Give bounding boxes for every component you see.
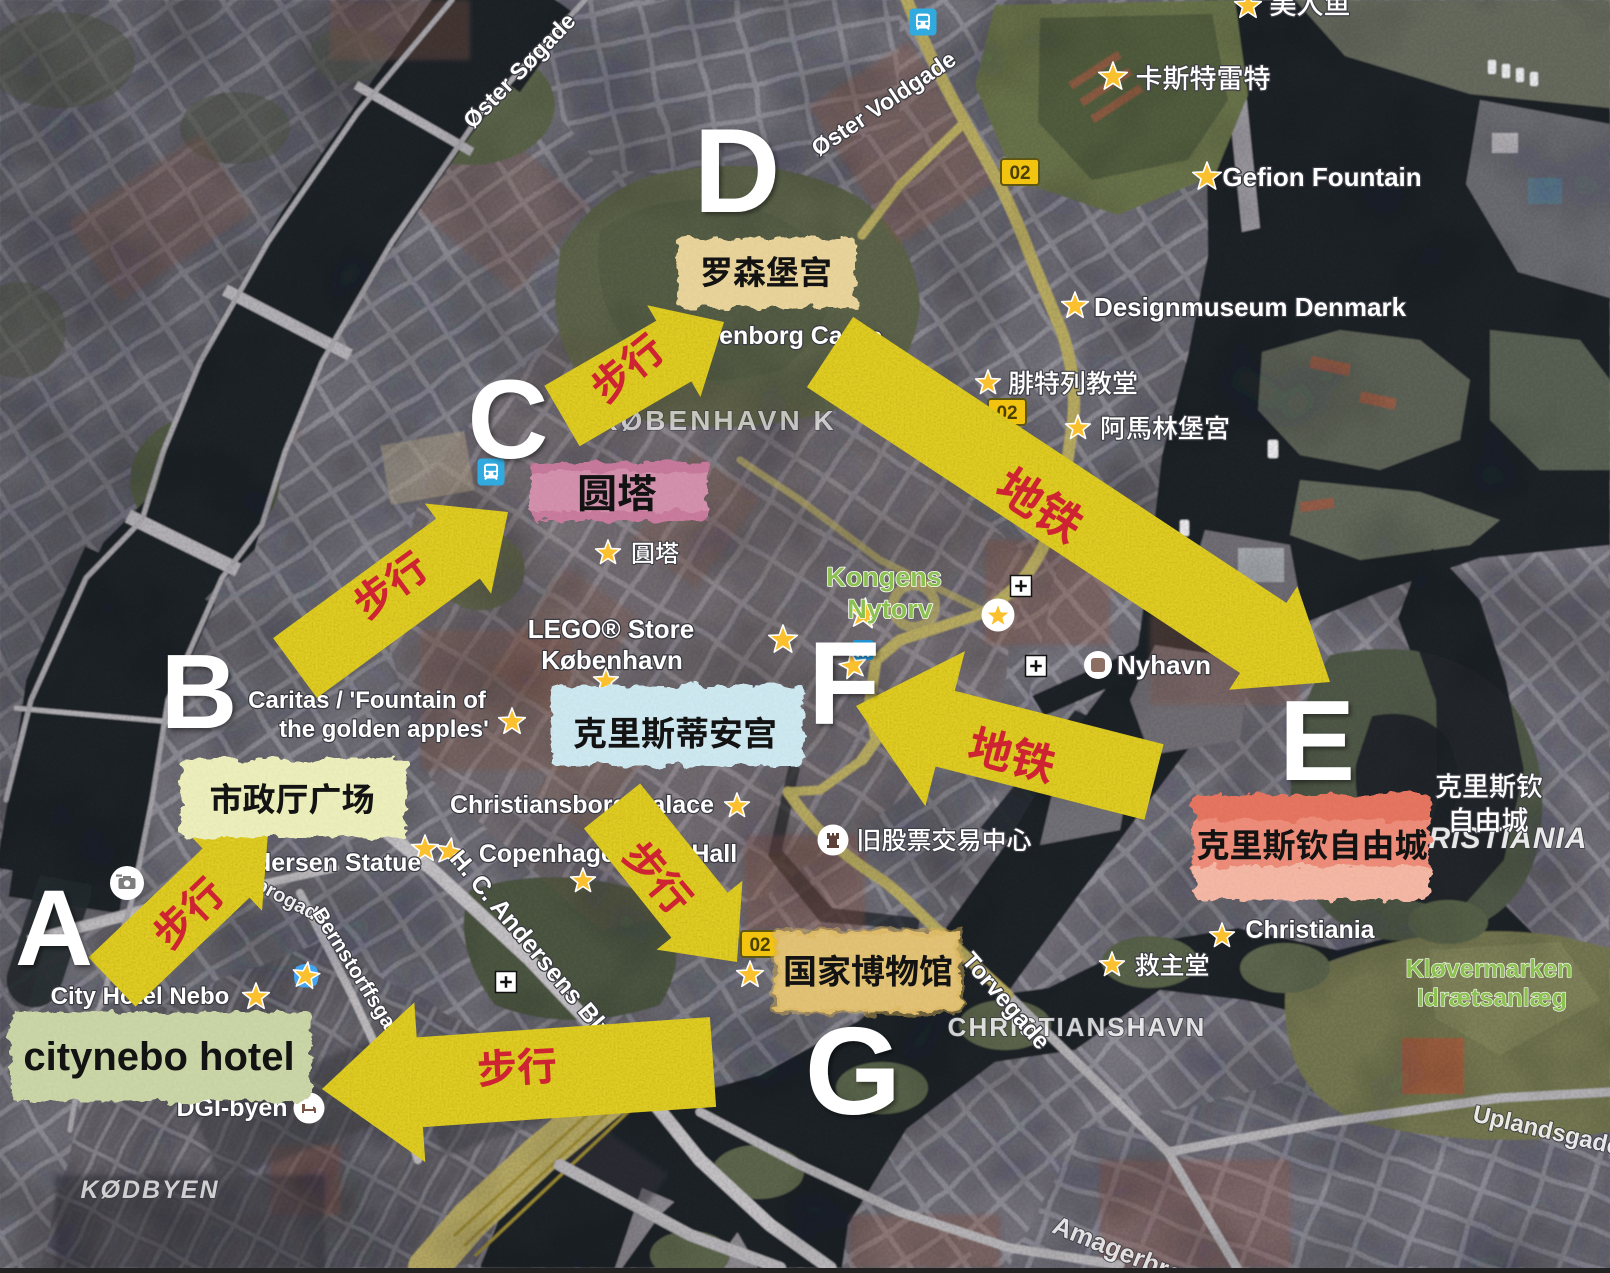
svg-text:B: B <box>161 633 238 751</box>
svg-text:København: København <box>541 645 683 675</box>
svg-text:Gefion Fountain: Gefion Fountain <box>1222 162 1421 192</box>
svg-text:C: C <box>468 357 549 482</box>
svg-text:the golden apples': the golden apples' <box>279 716 489 743</box>
svg-text:CHRISTIANSHAVN: CHRISTIANSHAVN <box>948 1012 1207 1042</box>
svg-text:Christiansborg Palace: Christiansborg Palace <box>450 791 714 819</box>
svg-text:Christiania: Christiania <box>1245 916 1375 944</box>
svg-text:Idrætsanlæg: Idrætsanlæg <box>1417 984 1567 1012</box>
svg-text:Caritas / 'Fountain of: Caritas / 'Fountain of <box>248 687 487 714</box>
svg-text:Kongens: Kongens <box>826 562 942 592</box>
svg-text:F: F <box>808 618 880 750</box>
svg-text:E: E <box>1279 678 1355 805</box>
svg-text:citynebo hotel: citynebo hotel <box>23 1035 294 1079</box>
svg-text:senborg Ca: senborg Ca <box>705 322 844 350</box>
svg-text:02: 02 <box>749 935 770 956</box>
svg-text:Kløvermarken: Kløvermarken <box>1406 955 1573 983</box>
svg-text:Designmuseum Denmark: Designmuseum Denmark <box>1094 292 1407 322</box>
svg-text:LEGO® Store: LEGO® Store <box>528 614 695 644</box>
svg-text:G: G <box>805 1003 901 1141</box>
svg-text:KØDBYEN: KØDBYEN <box>80 1176 219 1204</box>
svg-text:Nyhavn: Nyhavn <box>1117 650 1211 680</box>
svg-text:02: 02 <box>1009 163 1030 184</box>
svg-text:D: D <box>694 104 781 238</box>
svg-text:A: A <box>15 867 93 988</box>
